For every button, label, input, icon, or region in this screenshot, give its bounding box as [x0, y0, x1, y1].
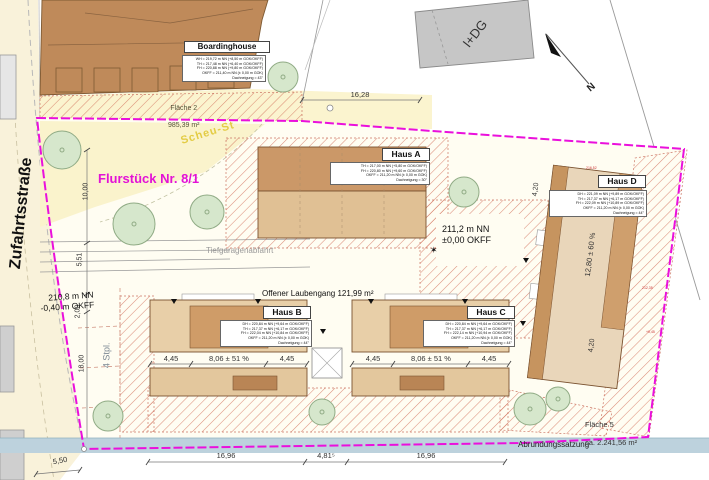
wedge-line-2 [305, 0, 330, 70]
dim-left-4: 18,00 [79, 348, 86, 380]
haus-d-label: Haus D [598, 175, 646, 188]
neighbor-block-3 [0, 430, 24, 480]
flaeche5-size: ca. 2.241,56 m² [585, 438, 637, 447]
flaeche2-name: Fläche 2 [170, 105, 197, 112]
dim-top: 16,28 [340, 90, 380, 99]
dim-b-2: 8,06 ± 51 % [195, 354, 263, 363]
wedge-line-1 [302, 0, 323, 102]
north-arrow-shaft [546, 34, 589, 84]
dim-c-3: 4,45 [474, 354, 504, 363]
dim-left-2: 5,51 [77, 244, 84, 276]
north-arrow-head [545, 33, 561, 57]
boundary-point-2 [82, 447, 87, 452]
dim-bottom-3: 16,96 [408, 451, 444, 460]
dim-bottom-2: 4,81⁵ [310, 451, 342, 460]
red-annotation-2: 212,35 [642, 286, 653, 290]
flaeche2-size: 985,39 m² [168, 122, 200, 129]
neighbor-block-1 [0, 55, 16, 119]
haus-b-label: Haus B [263, 306, 311, 319]
level-site: 211,2 m NN ±0,00 OKFF [442, 224, 491, 245]
plan-drawing [0, 0, 709, 480]
dim-bottom-1: 16,96 [208, 451, 244, 460]
access-marker-2 [255, 299, 261, 304]
access-marker-7 [520, 321, 526, 326]
red-annotation-3: +0,45 [646, 330, 655, 334]
boardinghouse-label: Boardinghouse [184, 41, 270, 53]
haus-a-info: TH = 217,00 m NN (+5,80 m GOK/OKFF) FH =… [330, 162, 430, 185]
haus-a-label: Haus A [382, 148, 430, 161]
hatch-parking-side [120, 296, 154, 432]
haus-b-info: DH = 220,84 m NN (+9,64 m GOK/OKFF) TH =… [220, 320, 312, 347]
access-marker-4 [462, 299, 468, 304]
dim-c-1: 4,45 [358, 354, 388, 363]
site-plan: Zufahrtsstraße Flurstück Nr. 8/1 Scheu-S… [0, 0, 709, 480]
flaeche5-label: Fläche 5 ca. 2.241,56 m² [585, 412, 637, 447]
access-marker-5 [320, 329, 326, 334]
dim-left-1: 10,00 [83, 176, 90, 208]
neighbor-block-2 [0, 326, 14, 392]
haus-c-info: DH = 220,84 m NN (+9,64 m GOK/OKFF) TH =… [423, 320, 515, 347]
access-marker-3 [368, 299, 374, 304]
stairwell [312, 348, 342, 378]
tiefgarage-label: Tiefgaragenabfahrt [206, 246, 273, 255]
access-marker-6 [523, 258, 529, 263]
boundary-point-1 [327, 105, 333, 111]
dim-b-1: 4,45 [156, 354, 186, 363]
abrundung-label: Abrundungssatzung [518, 440, 589, 449]
haus-c-label: Haus C [467, 306, 515, 319]
flaeche2-label: Fläche 2 985,39 m² [168, 97, 200, 130]
survey-star-icon: ✶ [430, 245, 438, 256]
flaeche5-name: Fläche 5 [585, 420, 614, 429]
dim-b-3: 4,45 [272, 354, 302, 363]
boardinghouse-info: WH = 219,72 m NN (+8,50 m GOK/OKFF) TH =… [182, 55, 266, 82]
red-annotation-1: 216,52 [586, 166, 597, 170]
dim-c-2: 8,06 ± 51 % [397, 354, 465, 363]
access-marker-1 [171, 299, 177, 304]
laubengang-label: Offener Laubengang 121,99 m² [262, 289, 374, 298]
parking-label: 4 Stpl. [102, 333, 113, 377]
parcel-title: Flurstück Nr. 8/1 [98, 171, 199, 186]
